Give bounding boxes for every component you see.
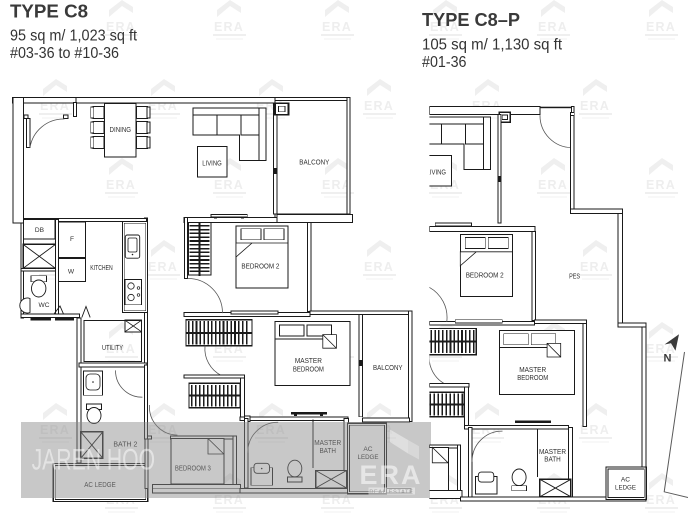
svg-text:DINING: DINING [110,127,132,134]
svg-text:W: W [68,269,75,276]
svg-text:N: N [664,353,672,365]
svg-text:TYPE C8–P: TYPE C8–P [422,10,520,30]
svg-text:BEDROOM: BEDROOM [517,375,548,382]
svg-text:BALCONY: BALCONY [299,160,329,167]
svg-text:ERA: ERA [359,460,422,490]
svg-text:#03-36 to #10-36: #03-36 to #10-36 [10,45,119,62]
svg-text:BALCONY: BALCONY [373,365,403,372]
svg-text:LEDGE: LEDGE [615,485,637,492]
svg-text:MASTER: MASTER [539,449,566,456]
svg-text:BEDROOM 2: BEDROOM 2 [466,273,504,280]
svg-text:MASTER: MASTER [519,367,546,374]
svg-text:#01-36: #01-36 [422,54,467,71]
svg-text:F: F [70,236,74,243]
svg-text:KITCHEN: KITCHEN [90,265,113,272]
svg-text:BEDROOM 2: BEDROOM 2 [241,264,279,271]
svg-text:AC: AC [621,477,630,484]
svg-text:105 sq m/ 1,130 sq ft: 105 sq m/ 1,130 sq ft [422,37,563,54]
svg-text:WC: WC [39,302,50,309]
svg-text:95 sq m/ 1,023 sq ft: 95 sq m/ 1,023 sq ft [10,28,138,45]
svg-text:BEDROOM: BEDROOM [293,366,324,373]
svg-text:TYPE C8: TYPE C8 [10,2,88,22]
svg-text:PES: PES [569,273,580,280]
svg-text:UTILITY: UTILITY [102,345,123,352]
svg-text:LIVING: LIVING [427,169,447,176]
svg-text:REAL ESTATE: REAL ESTATE [369,489,413,495]
svg-text:JAREN HOO: JAREN HOO [32,444,156,477]
svg-text:DB: DB [35,227,45,234]
svg-text:MASTER: MASTER [295,358,322,365]
svg-text:LIVING: LIVING [202,161,222,168]
svg-text:BATH: BATH [544,457,561,464]
